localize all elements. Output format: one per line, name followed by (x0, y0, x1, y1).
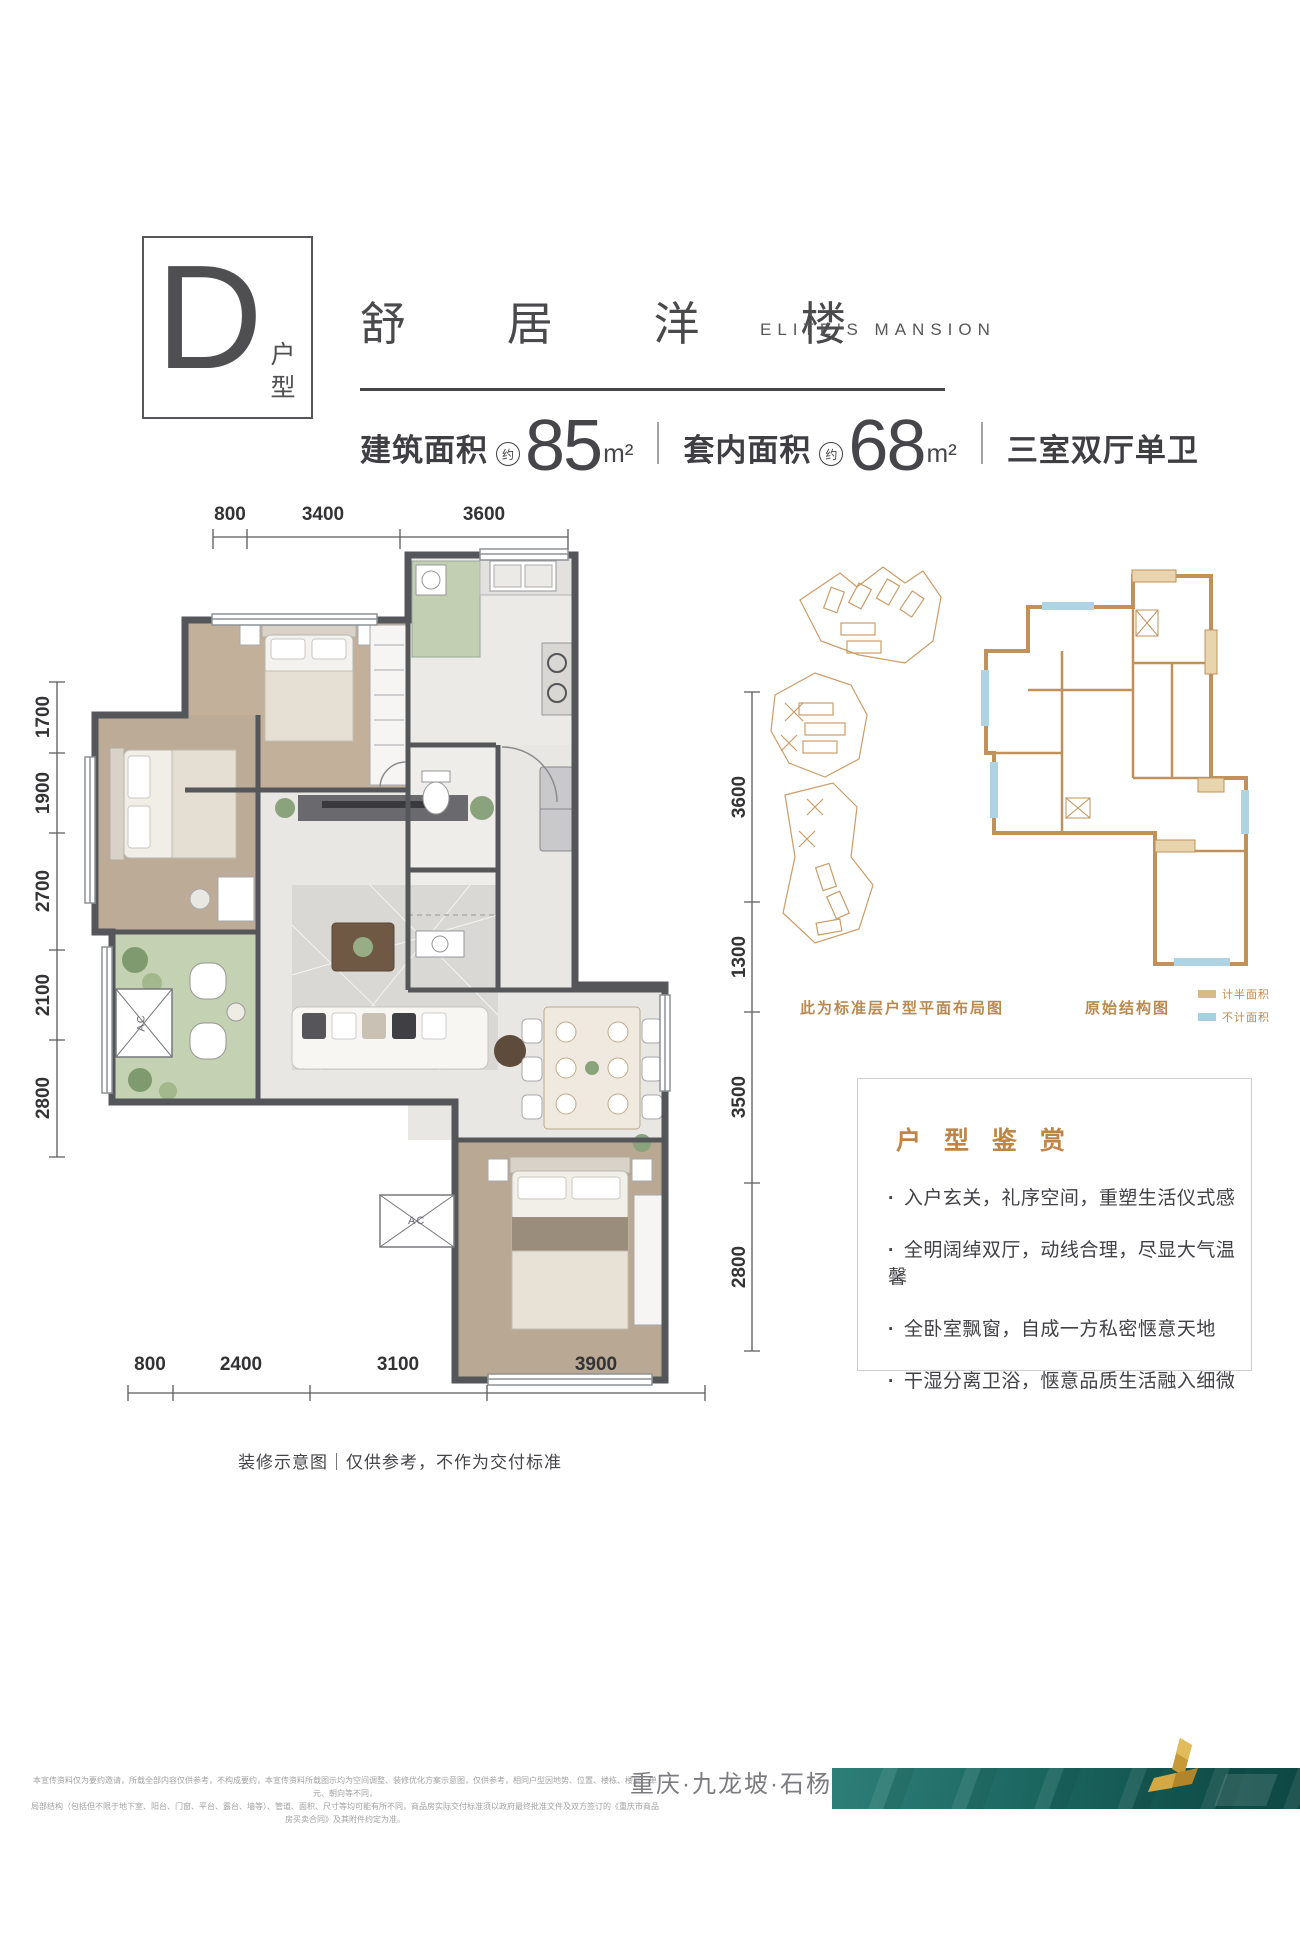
dim-label: 2700 (32, 861, 56, 921)
spec-separator (981, 422, 983, 464)
review-bullet: 入户玄关，礼序空间，重塑生活仪式感 (888, 1183, 1251, 1210)
brand-banner (832, 1768, 1300, 1809)
area2-label: 套内面积 (683, 425, 811, 478)
dim-label: 3900 (566, 1353, 626, 1377)
structure-caption: 原始结构图 (1085, 997, 1170, 1018)
dim-label: 1900 (32, 763, 56, 823)
legend-row: 不计面积 (1198, 1009, 1270, 1025)
review-title: 户 型 鉴 赏 (896, 1121, 1251, 1157)
disclaimer: 本宣传资料仅为要约邀请，所载全部内容仅供参考，不构成要约，本宣传资料所载图示均为… (30, 1774, 660, 1826)
ac-label: AC (408, 1215, 425, 1227)
review-bullet: 全明阔绰双厅，动线合理，尽显大气温馨 (888, 1235, 1251, 1289)
dim-label: 3500 (728, 1067, 752, 1127)
review-list: 入户玄关，礼序空间，重塑生活仪式感 全明阔绰双厅，动线合理，尽显大气温馨 全卧室… (888, 1183, 1251, 1393)
dim-label: 1700 (32, 687, 56, 747)
header-divider (360, 388, 945, 391)
unit-label: 户型 (263, 341, 299, 407)
review-bullet: 全卧室飘窗，自成一方私密惬意天地 (888, 1314, 1251, 1341)
dim-label: 3100 (368, 1353, 428, 1377)
legend-label: 计半面积 (1222, 986, 1270, 1002)
disclaimer-line: 本宣传资料仅为要约邀请，所载全部内容仅供参考，不构成要约，本宣传资料所载图示均为… (30, 1774, 660, 1800)
dim-label: 800 (120, 1353, 180, 1377)
project-location: 重庆·九龙坡·石杨路 (630, 1764, 858, 1799)
legend-label: 不计面积 (1222, 1009, 1270, 1025)
approx-circle-icon: 约 (819, 442, 843, 466)
banner-ghost-shape (1214, 1774, 1278, 1806)
area1-value: 85 (525, 415, 601, 478)
dim-label: 2800 (32, 1068, 56, 1128)
area2-unit: m² (927, 438, 957, 478)
page-title-en: ELITE'S MANSION (760, 320, 996, 340)
unit-type-badge: D 户型 (142, 236, 313, 419)
area1-label: 建筑面积 (360, 425, 488, 478)
layout-text: 三室双厅单卫 (1007, 425, 1199, 478)
ac-label: AC (136, 1014, 148, 1031)
dim-label: 2400 (211, 1353, 271, 1377)
spec-row: 建筑面积 约 85 m² 套内面积 约 68 m² 三室双厅单卫 (360, 398, 1199, 478)
dim-label: 800 (200, 503, 260, 527)
floorplan: 800 3400 3600 1700 1900 2700 2100 2800 3… (40, 495, 770, 1415)
floorplan-drawing (40, 495, 770, 1415)
unit-letter: D (156, 240, 263, 395)
approx-circle-icon: 约 (496, 442, 520, 466)
disclaimer-line: 局部结构（包括但不限于地下室、阳台、门窗、平台、露台、墙等）、管道、面积、尺寸等… (30, 1800, 660, 1826)
unit-review-box: 户 型 鉴 赏 入户玄关，礼序空间，重塑生活仪式感 全明阔绰双厅，动线合理，尽显… (857, 1078, 1252, 1371)
dim-label: 2800 (728, 1237, 752, 1297)
dim-label: 3600 (728, 767, 752, 827)
dim-label: 3600 (454, 503, 514, 527)
dim-label: 1300 (728, 927, 752, 987)
poster-page: D 户型 舒 居 洋 楼 ELITE'S MANSION 建筑面积 约 85 m… (0, 0, 1300, 1950)
legend-row: 计半面积 (1198, 986, 1270, 1002)
area1-unit: m² (603, 438, 633, 478)
dim-label: 3400 (293, 503, 353, 527)
half-area-swatch-icon (1198, 990, 1216, 998)
dim-label: 2100 (32, 965, 56, 1025)
spec-separator (657, 422, 659, 464)
structure-diagram (950, 540, 1260, 972)
gold-ribbon-icon (1146, 1736, 1202, 1804)
siteplan-caption: 此为标准层户型平面布局图 (800, 997, 1004, 1018)
plan-caption: 装修示意图｜仅供参考，不作为交付标准 (220, 1448, 580, 1473)
area-legend: 计半面积 不计面积 (1198, 986, 1270, 1032)
review-bullet: 干湿分离卫浴，惬意品质生活融入细微 (888, 1366, 1251, 1393)
area2-value: 68 (848, 415, 924, 478)
excluded-area-swatch-icon (1198, 1013, 1216, 1021)
